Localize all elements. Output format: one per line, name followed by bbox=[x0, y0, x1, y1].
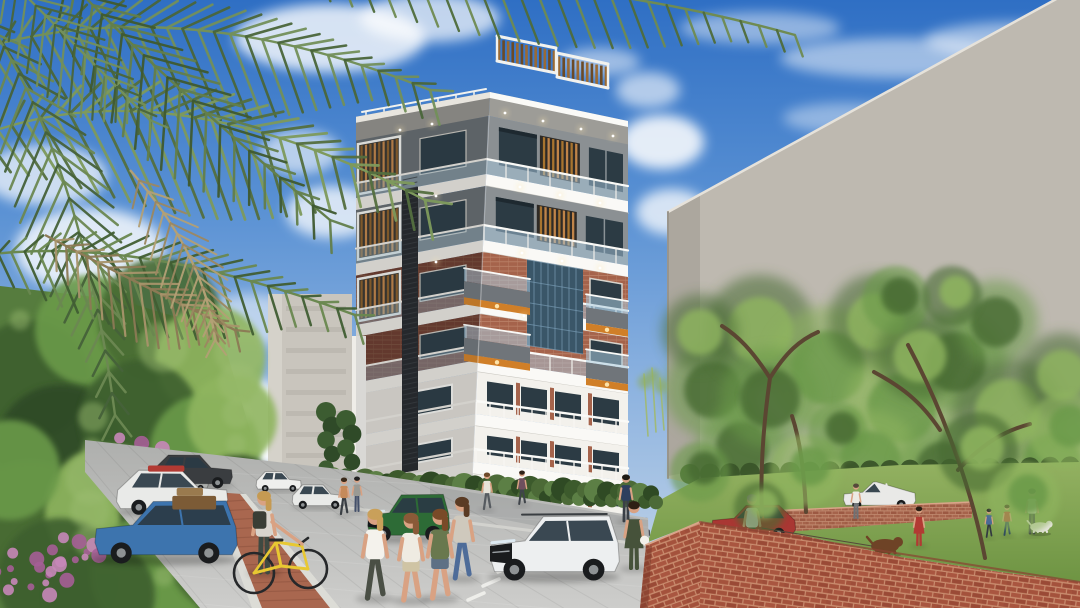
architectural-render bbox=[0, 0, 1080, 608]
